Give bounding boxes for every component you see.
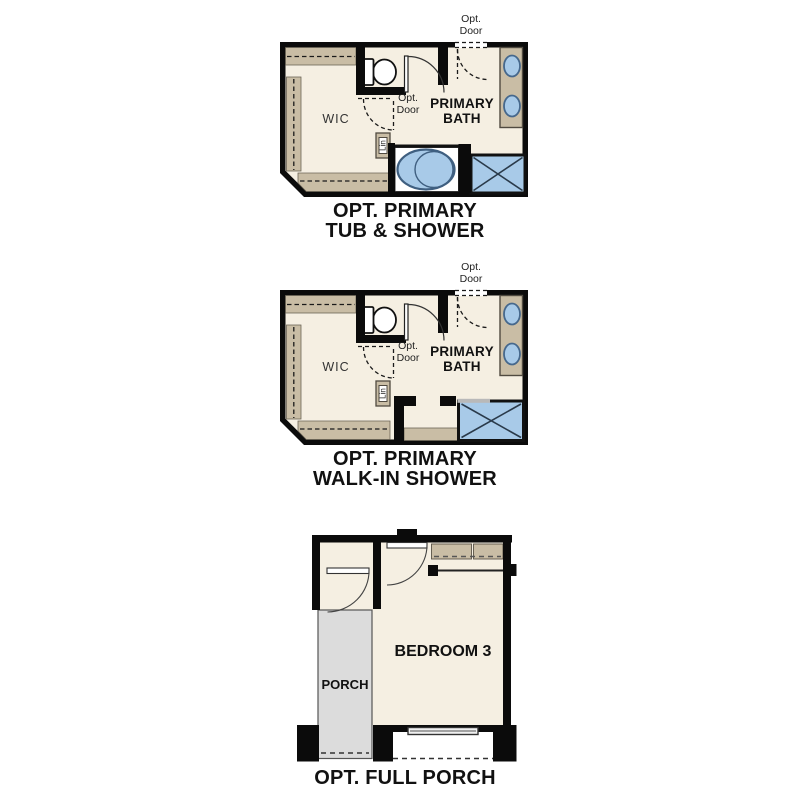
walk-in-shower-icon bbox=[458, 399, 524, 441]
caption-walkin-shower: OPT. PRIMARY WALK-IN SHOWER bbox=[0, 450, 810, 489]
opt-door-label-top: Opt. Door bbox=[441, 13, 501, 37]
tub-room bbox=[395, 145, 459, 192]
porch-label: PORCH bbox=[315, 677, 375, 692]
window-icon bbox=[408, 728, 478, 735]
shower-icon bbox=[471, 155, 525, 193]
wic-label: WIC bbox=[306, 360, 366, 374]
caption-tub-shower: OPT. PRIMARY TUB & SHOWER bbox=[0, 202, 810, 241]
sink-icon bbox=[504, 56, 520, 77]
opt-door-label-top: Opt. Door bbox=[441, 261, 501, 285]
linen-label: Lin bbox=[378, 383, 389, 405]
bedroom-label: BEDROOM 3 bbox=[383, 643, 503, 661]
bottom-wall-band bbox=[404, 428, 459, 441]
linen-label: Lin bbox=[378, 135, 389, 157]
toilet-icon bbox=[364, 59, 397, 85]
shower-threshold bbox=[458, 399, 491, 403]
primary-bath-label: PRIMARY BATH bbox=[412, 97, 512, 126]
wic-label: WIC bbox=[306, 112, 366, 126]
toilet-icon bbox=[364, 307, 397, 333]
caption-full-porch: OPT. FULL PORCH bbox=[0, 769, 810, 789]
sink-icon bbox=[504, 304, 520, 325]
floorplan-sheet: Opt. Door WIC Opt. Door PRIMARY BATH Lin… bbox=[0, 0, 810, 810]
primary-bath-label: PRIMARY BATH bbox=[412, 345, 512, 374]
